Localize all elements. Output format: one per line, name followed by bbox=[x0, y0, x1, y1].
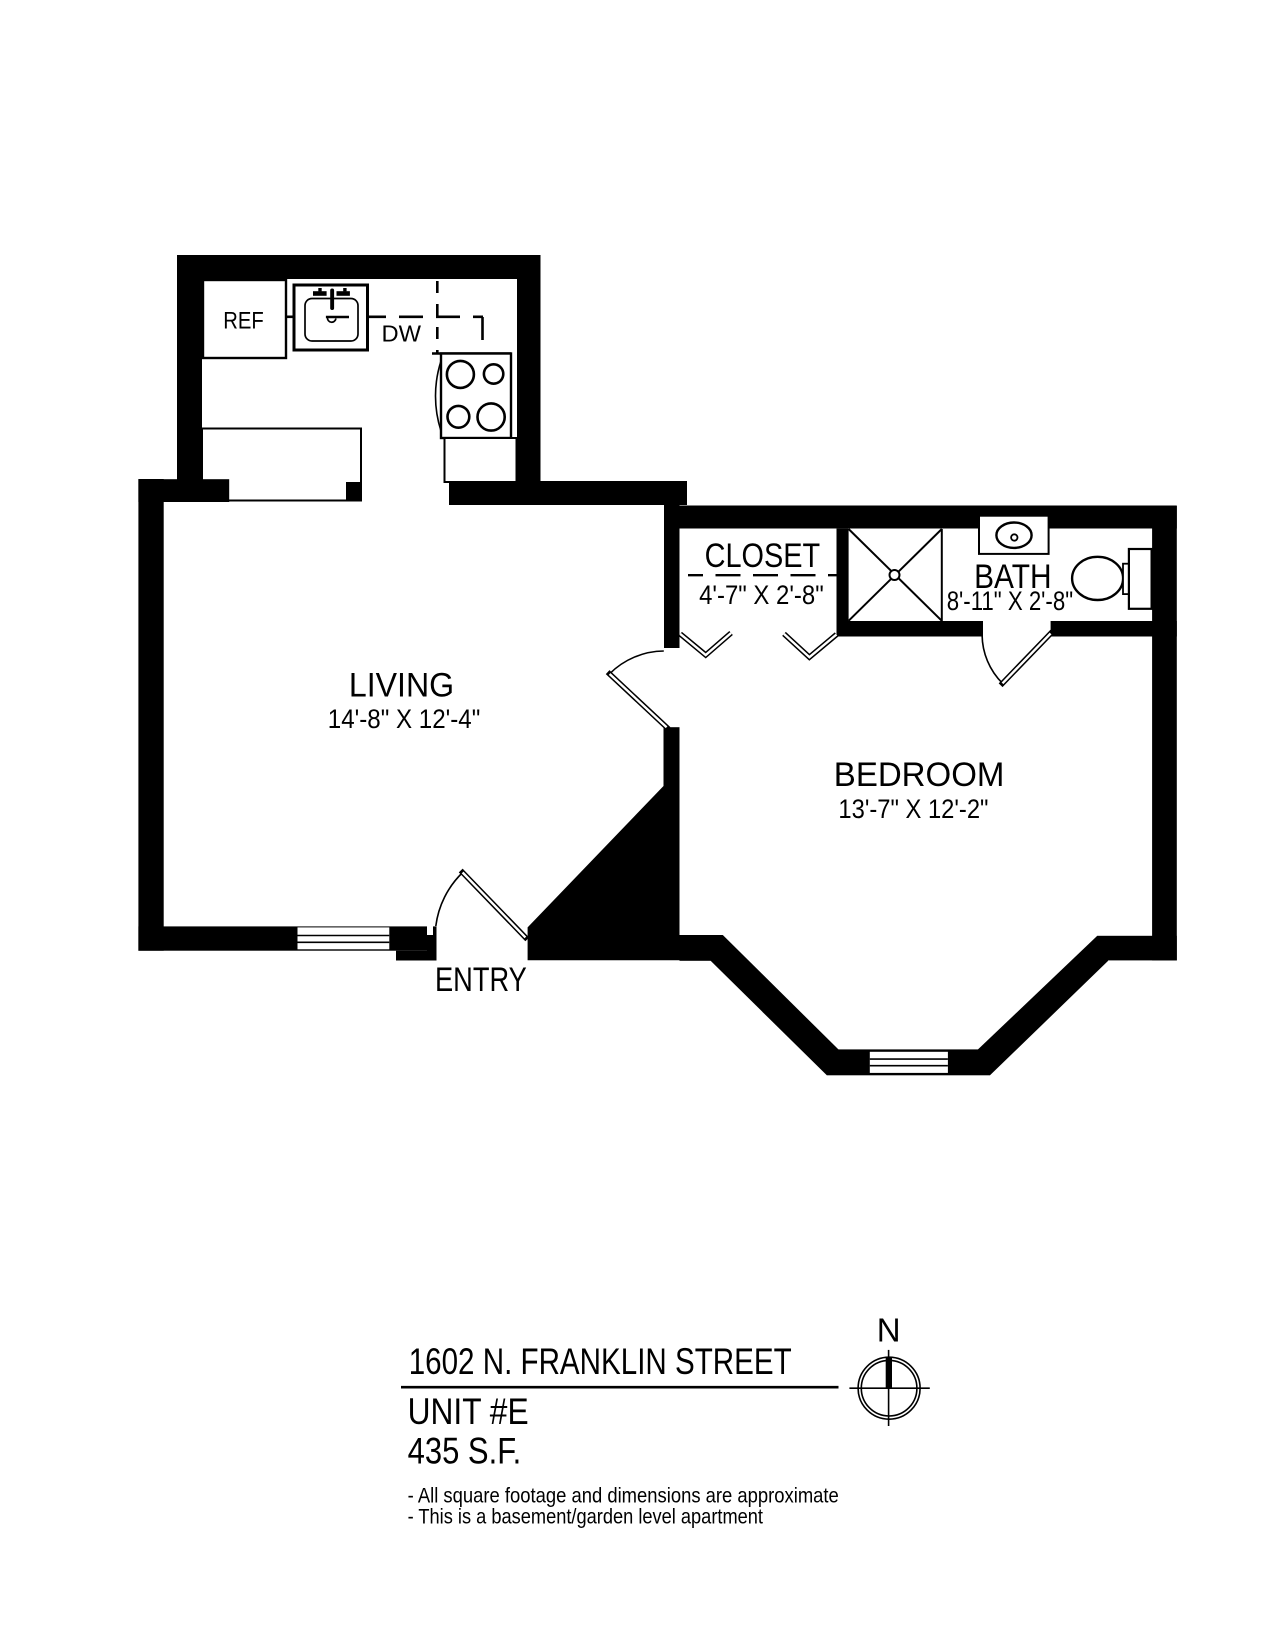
svg-text:1602 N. FRANKLIN STREET: 1602 N. FRANKLIN STREET bbox=[409, 1340, 792, 1382]
svg-text:REF: REF bbox=[223, 308, 264, 335]
svg-text:13'-7" X 12'-2": 13'-7" X 12'-2" bbox=[838, 794, 988, 824]
svg-text:4'-7" X 2'-8": 4'-7" X 2'-8" bbox=[699, 580, 824, 610]
svg-text:8'-11" X 2'-8": 8'-11" X 2'-8" bbox=[947, 586, 1073, 616]
svg-text:LIVING: LIVING bbox=[349, 667, 454, 705]
svg-text:ENTRY: ENTRY bbox=[435, 961, 527, 999]
svg-text:N: N bbox=[877, 1312, 901, 1349]
svg-text:CLOSET: CLOSET bbox=[705, 537, 821, 575]
svg-text:DW: DW bbox=[382, 321, 422, 347]
svg-text:- This is a basement/garden le: - This is a basement/garden level apartm… bbox=[408, 1506, 764, 1529]
svg-text:BEDROOM: BEDROOM bbox=[834, 756, 1005, 794]
svg-text:14'-8" X 12'-4": 14'-8" X 12'-4" bbox=[328, 704, 481, 734]
svg-text:435 S.F.: 435 S.F. bbox=[408, 1430, 522, 1472]
svg-text:- All square footage and dimen: - All square footage and dimensions are … bbox=[408, 1485, 839, 1508]
svg-text:UNIT #E: UNIT #E bbox=[408, 1390, 529, 1432]
